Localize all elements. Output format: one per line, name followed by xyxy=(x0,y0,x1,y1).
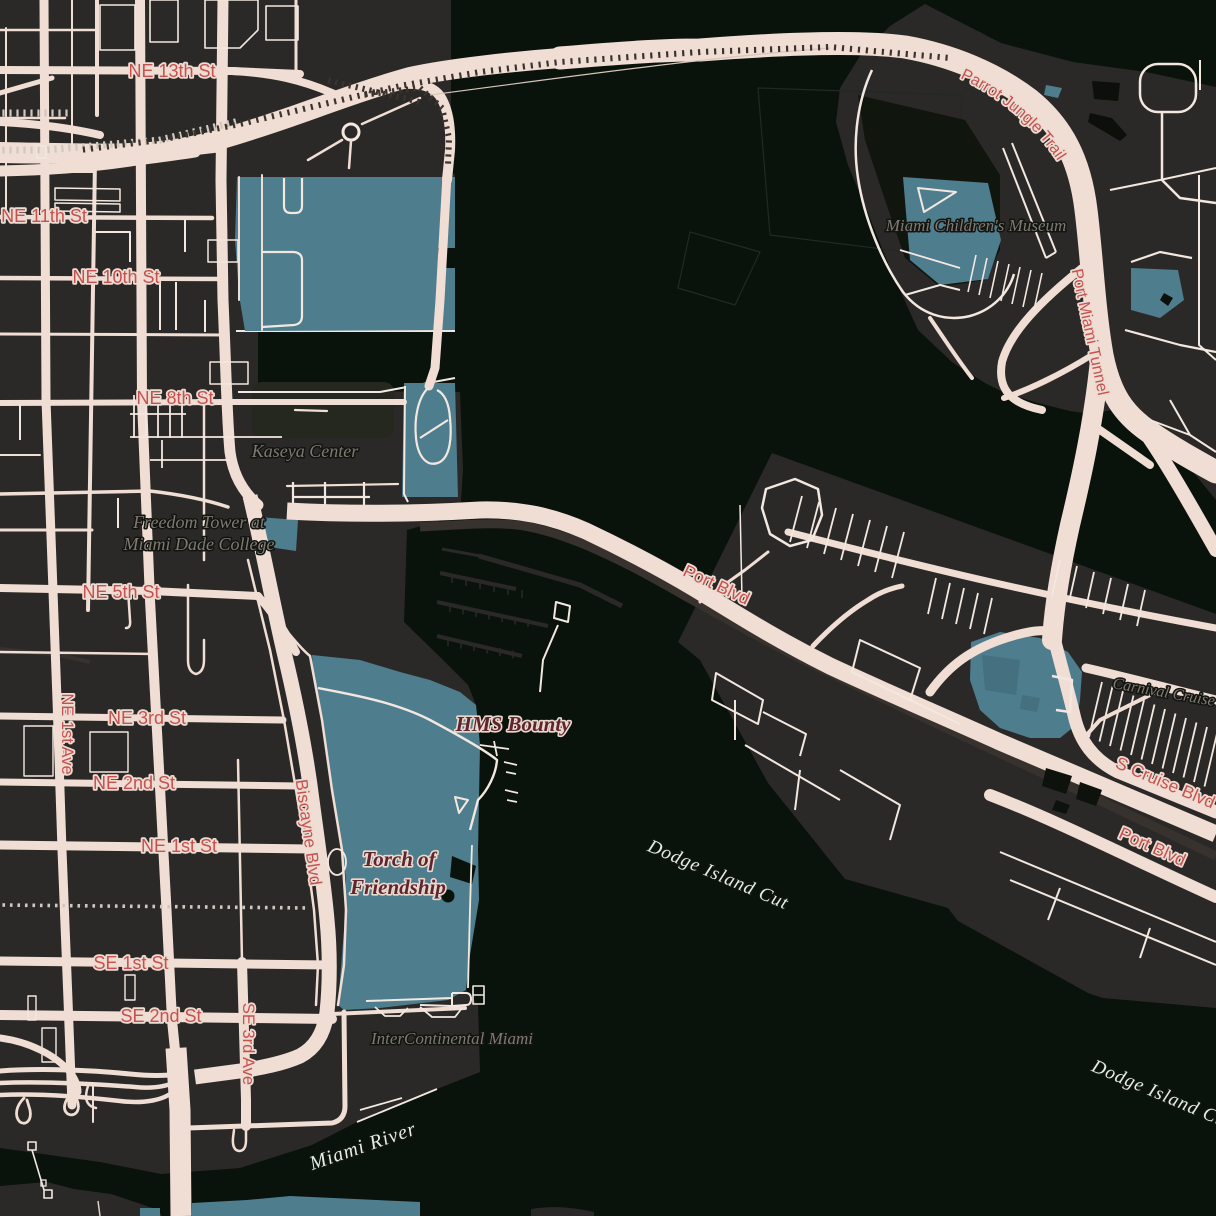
svg-text:Freedom Tower at: Freedom Tower at xyxy=(132,512,266,532)
svg-text:NE 10th St: NE 10th St xyxy=(72,267,159,287)
svg-text:NE 1st St: NE 1st St xyxy=(141,836,217,856)
svg-text:NE 11th St: NE 11th St xyxy=(1,206,87,226)
svg-text:NE 8th St: NE 8th St xyxy=(136,388,213,408)
svg-text:Friendship: Friendship xyxy=(349,875,446,899)
svg-text:Torch of: Torch of xyxy=(362,847,437,871)
svg-text:Kaseya Center: Kaseya Center xyxy=(251,441,359,461)
svg-text:NE 2nd St: NE 2nd St xyxy=(93,773,175,793)
svg-text:NE 13th St: NE 13th St xyxy=(128,61,215,81)
svg-text:HMS Bounty: HMS Bounty xyxy=(455,712,572,736)
svg-text:Miami Dade College: Miami Dade College xyxy=(123,534,275,554)
svg-text:SE 3rd Ave: SE 3rd Ave xyxy=(239,1003,257,1085)
svg-text:NE 1st Ave: NE 1st Ave xyxy=(58,693,76,774)
svg-text:SE 2nd St: SE 2nd St xyxy=(120,1006,201,1026)
svg-text:SE 1st St: SE 1st St xyxy=(93,953,168,973)
svg-text:Miami Children's Museum: Miami Children's Museum xyxy=(885,216,1067,235)
svg-text:NE 5th St: NE 5th St xyxy=(82,582,159,602)
svg-text:NE 3rd St: NE 3rd St xyxy=(108,708,186,728)
svg-text:InterContinental Miami: InterContinental Miami xyxy=(370,1029,533,1048)
